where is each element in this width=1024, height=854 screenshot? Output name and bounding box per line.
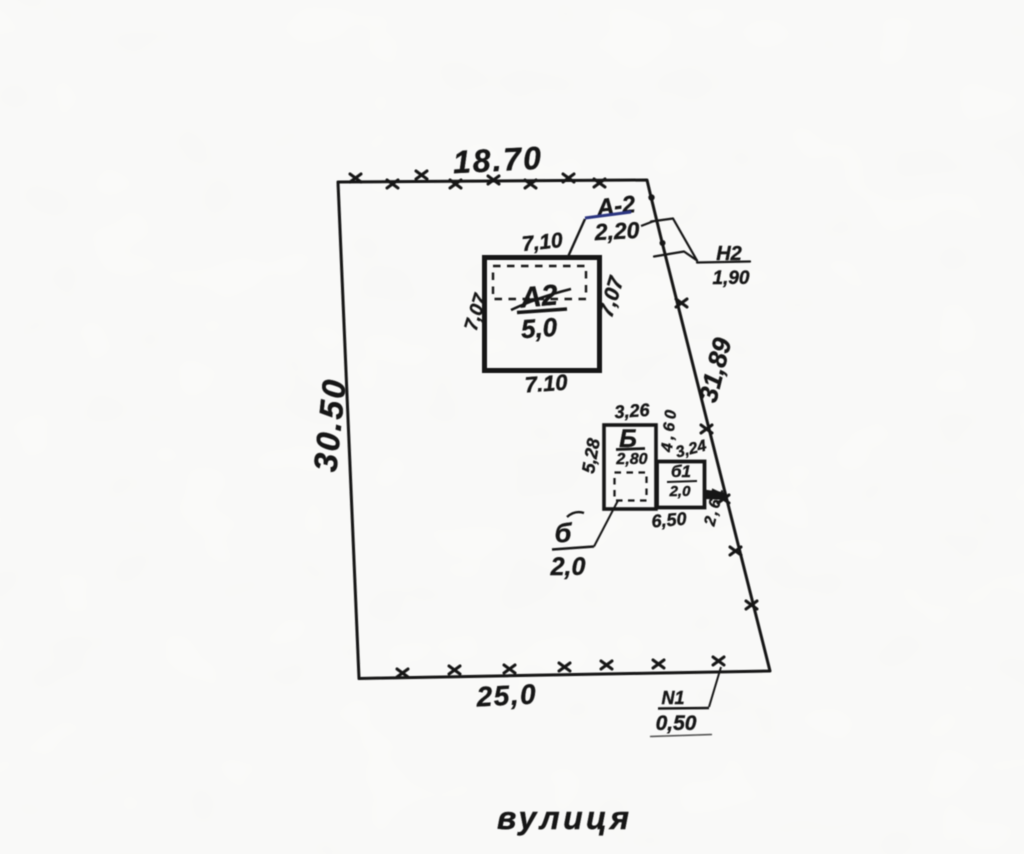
svg-text:2,0: 2,0 bbox=[550, 553, 586, 581]
svg-text:1,90: 1,90 bbox=[713, 268, 750, 289]
svg-text:б1: б1 bbox=[671, 462, 691, 481]
svg-text:6,50: 6,50 bbox=[651, 509, 688, 532]
svg-text:2,0: 2,0 bbox=[669, 483, 692, 500]
svg-text:2,80: 2,80 bbox=[615, 451, 647, 468]
svg-text:7,10: 7,10 bbox=[521, 229, 564, 256]
svg-text:N1: N1 bbox=[661, 688, 684, 708]
svg-text:2,20: 2,20 bbox=[593, 217, 640, 245]
svg-text:3,26: 3,26 bbox=[614, 400, 651, 422]
svg-text:0,50: 0,50 bbox=[656, 712, 697, 735]
svg-text:18.70: 18.70 bbox=[452, 140, 542, 181]
svg-text:7.10: 7.10 bbox=[524, 369, 569, 397]
svg-text:б: б bbox=[555, 518, 573, 548]
svg-text:5,0: 5,0 bbox=[520, 312, 559, 344]
svg-text:Н2: Н2 bbox=[716, 243, 742, 265]
svg-text:25,0: 25,0 bbox=[475, 678, 537, 712]
